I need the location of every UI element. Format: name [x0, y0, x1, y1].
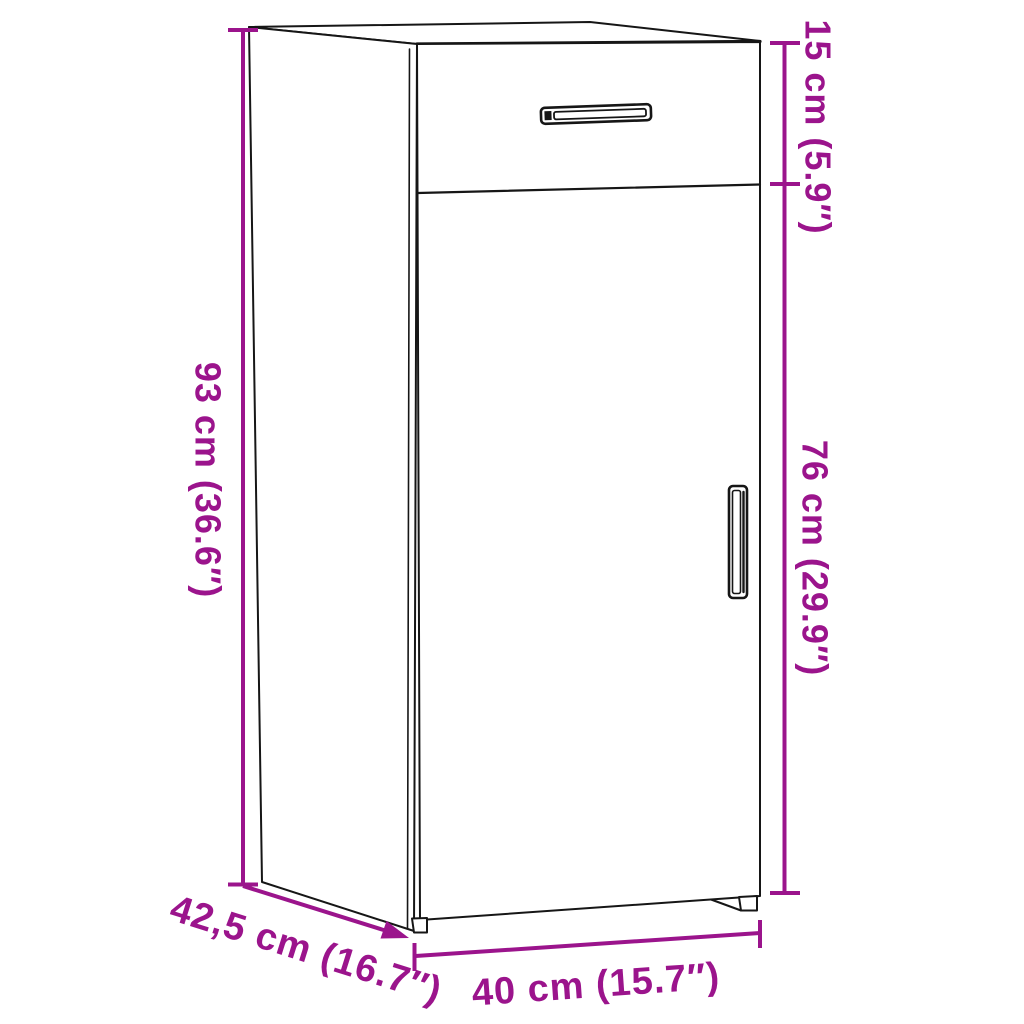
door-height-dimension-label: 76 cm (29.9″)	[795, 440, 836, 676]
drawer-handle-end-cap	[544, 111, 551, 120]
left-foot	[412, 918, 427, 933]
product-dimension-diagram: 93 cm (36.6″) 15 cm (5.9″) 76 cm (29.9″)…	[0, 0, 1024, 1024]
height-dimension-label: 93 cm (36.6″)	[188, 362, 229, 598]
right-foot	[739, 896, 757, 911]
cabinet-front-face	[417, 42, 760, 920]
drawer-handle	[541, 104, 651, 124]
dimension-diagram-canvas: 93 cm (36.6″) 15 cm (5.9″) 76 cm (29.9″)…	[0, 0, 1024, 1024]
door-handle	[729, 486, 747, 598]
width-dimension-label: 40 cm (15.7″)	[470, 955, 721, 1014]
cabinet-side-panel	[249, 27, 417, 931]
cabinet-line-art	[249, 22, 760, 933]
right-foot-bracket	[711, 900, 741, 911]
drawer-height-dimension-label: 15 cm (5.9″)	[798, 19, 839, 234]
